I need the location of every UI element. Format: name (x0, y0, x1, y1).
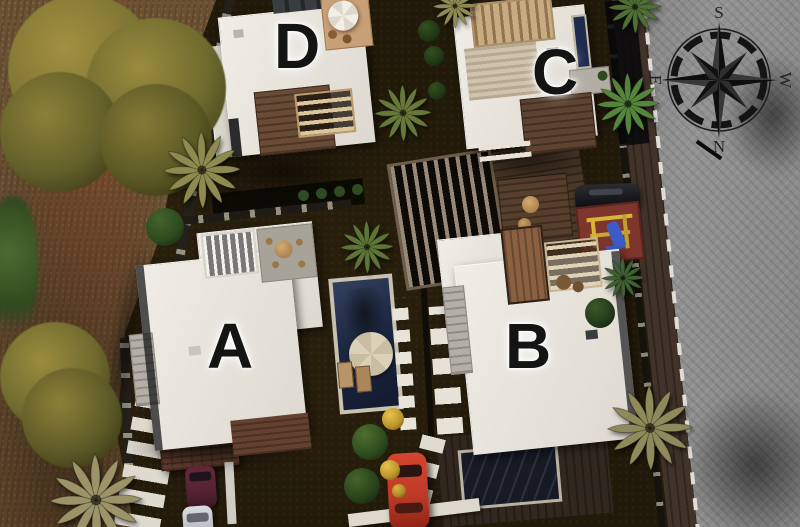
palm-tree (160, 128, 244, 212)
car-windshield (189, 471, 212, 482)
stone-terrace (464, 41, 541, 100)
villa-b-label: B (505, 314, 551, 378)
tree-shadow-on-road-2 (685, 390, 800, 527)
bush (585, 298, 615, 328)
compass-north-label: N (713, 137, 725, 156)
palm-tree (372, 82, 434, 144)
car-windshield (186, 512, 209, 523)
steps (478, 137, 532, 162)
car-rear-window (395, 502, 423, 513)
roof-vent (585, 330, 598, 340)
patio-table (522, 196, 539, 213)
roof-vent (188, 346, 201, 356)
hedge-shrub (334, 186, 345, 197)
villa-d-label: D (274, 14, 320, 78)
sun-lounger-2 (355, 365, 372, 392)
palm-tree (604, 382, 696, 474)
hedge-shrub (298, 190, 309, 201)
bush (424, 46, 444, 66)
compass-west-label: W (776, 72, 793, 89)
yellow-bush (382, 408, 404, 430)
villa-a-label: A (207, 314, 253, 378)
palm-tree (46, 450, 146, 527)
pergola-beige (294, 88, 356, 138)
hedge-shrub (316, 188, 327, 199)
palm-tree (594, 70, 662, 138)
carport-pillar (224, 462, 236, 524)
bush (344, 468, 380, 504)
site-plan-render: S N E W (0, 0, 800, 527)
palm-tree (600, 255, 646, 301)
compass-south-label: S (714, 4, 723, 22)
palm-tree (606, 0, 664, 36)
pergola-white (201, 229, 259, 278)
palm-tree (338, 218, 396, 276)
wood-panel (500, 225, 550, 305)
yellow-bush (392, 484, 406, 498)
hedge-shrub (352, 184, 363, 195)
bush (146, 208, 184, 246)
villa-c-label: C (532, 40, 578, 104)
car-silver (182, 505, 214, 527)
car-maroon (185, 465, 218, 509)
brick-wing (230, 413, 311, 457)
yellow-bush (380, 460, 400, 480)
palm-tree (431, 0, 479, 30)
car-roof-glint (589, 188, 623, 195)
compass-rose: S N E W (645, 4, 793, 156)
bush (352, 424, 388, 460)
roof-vent (233, 29, 244, 38)
